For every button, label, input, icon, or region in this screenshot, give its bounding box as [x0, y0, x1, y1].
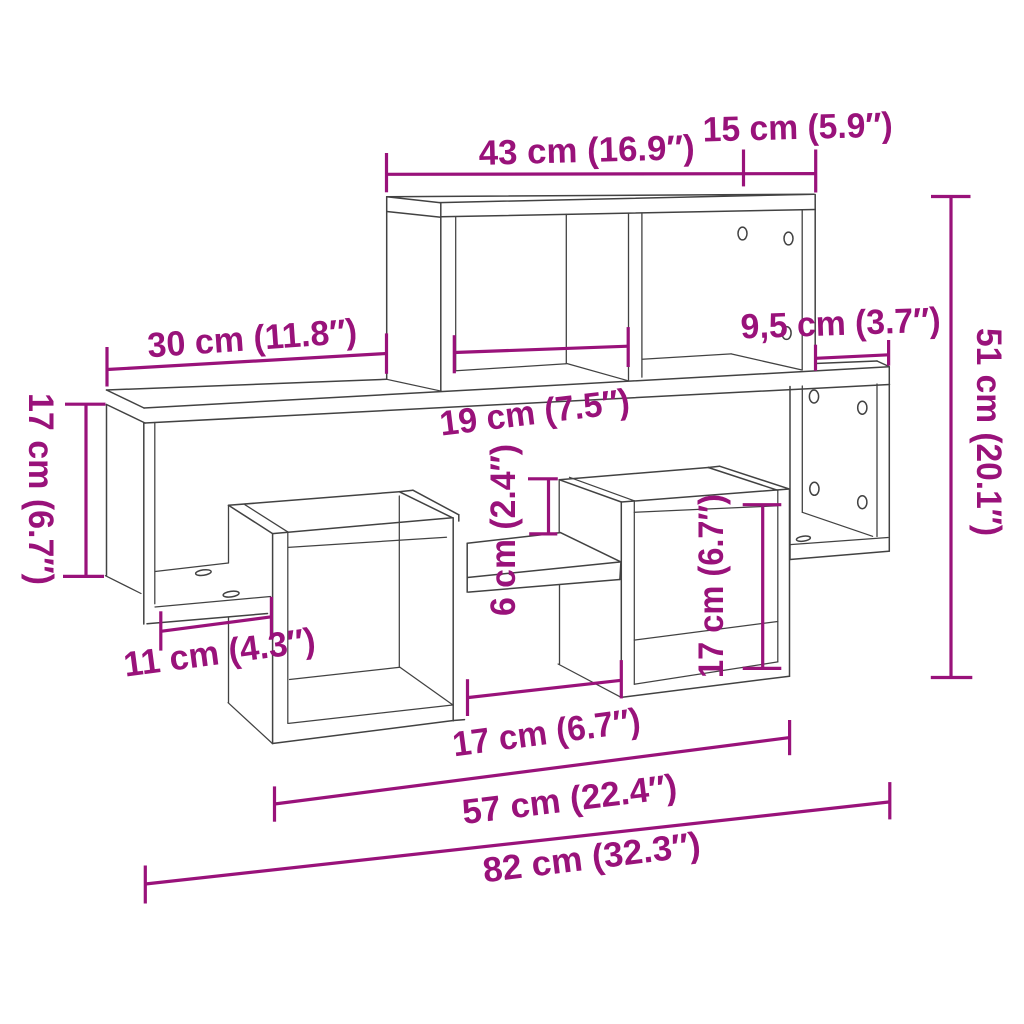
svg-text:6 cm (2.4″): 6 cm (2.4″): [484, 444, 523, 616]
svg-text:17 cm (6.7″): 17 cm (6.7″): [692, 494, 731, 678]
svg-text:43 cm (16.9″): 43 cm (16.9″): [478, 128, 695, 173]
svg-text:9,5 cm (3.7″): 9,5 cm (3.7″): [740, 301, 941, 347]
svg-text:15 cm (5.9″): 15 cm (5.9″): [702, 106, 893, 150]
svg-text:51 cm (20.1″): 51 cm (20.1″): [969, 328, 1008, 536]
svg-text:17 cm (6.7″): 17 cm (6.7″): [21, 393, 60, 585]
